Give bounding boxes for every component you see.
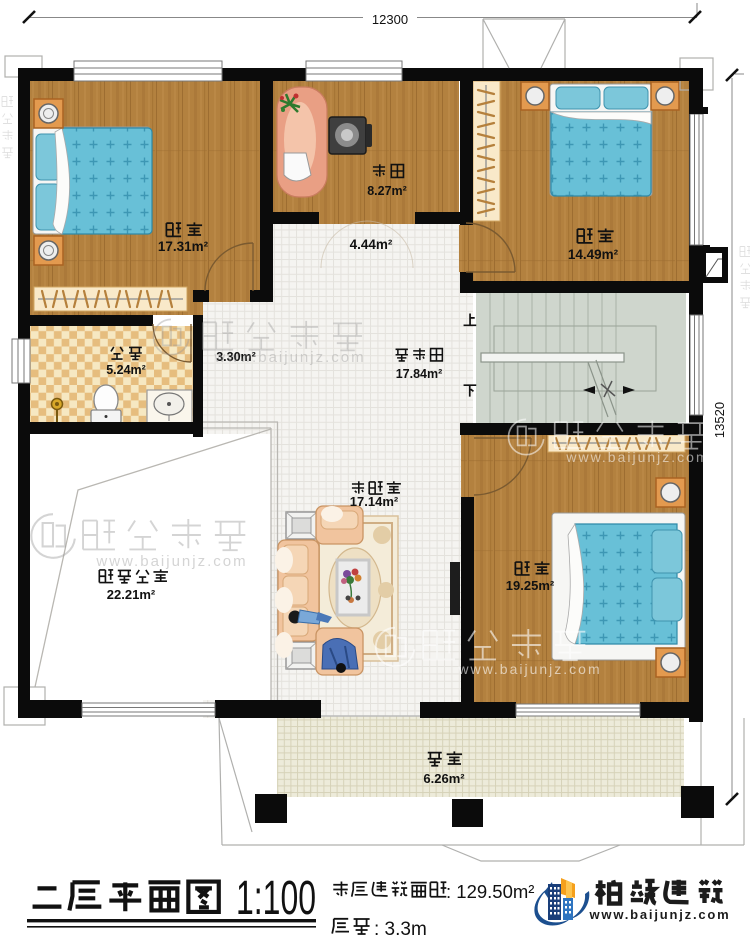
svg-text:8.27m²: 8.27m² <box>367 184 407 198</box>
svg-text:22.21m²: 22.21m² <box>107 587 156 602</box>
svg-text:www.baijunjz.com: www.baijunjz.com <box>95 553 247 570</box>
svg-text:: 129.50m²: : 129.50m² <box>446 881 534 902</box>
svg-text:13520: 13520 <box>712 402 727 438</box>
svg-text:17.14m²: 17.14m² <box>350 494 399 509</box>
svg-text:5.24m²: 5.24m² <box>106 363 146 377</box>
svg-text:4.44m²: 4.44m² <box>350 237 393 252</box>
svg-text:: 3.3m: : 3.3m <box>374 919 427 939</box>
svg-text:www.baijunjz.com: www.baijunjz.com <box>565 449 709 465</box>
svg-text:19.25m²: 19.25m² <box>506 578 555 593</box>
svg-text:www.baijunjz.com: www.baijunjz.com <box>457 661 601 677</box>
svg-text:17.31m²: 17.31m² <box>158 239 209 254</box>
svg-text:14.49m²: 14.49m² <box>568 247 619 262</box>
svg-text:17.84m²: 17.84m² <box>396 367 443 381</box>
svg-text:6.26m²: 6.26m² <box>423 771 465 786</box>
svg-text:www.baijunjz.com: www.baijunjz.com <box>213 349 365 366</box>
svg-text:www.baijunjz.com: www.baijunjz.com <box>589 907 731 922</box>
svg-text:12300: 12300 <box>372 12 408 27</box>
svg-text:1:100: 1:100 <box>236 872 316 925</box>
